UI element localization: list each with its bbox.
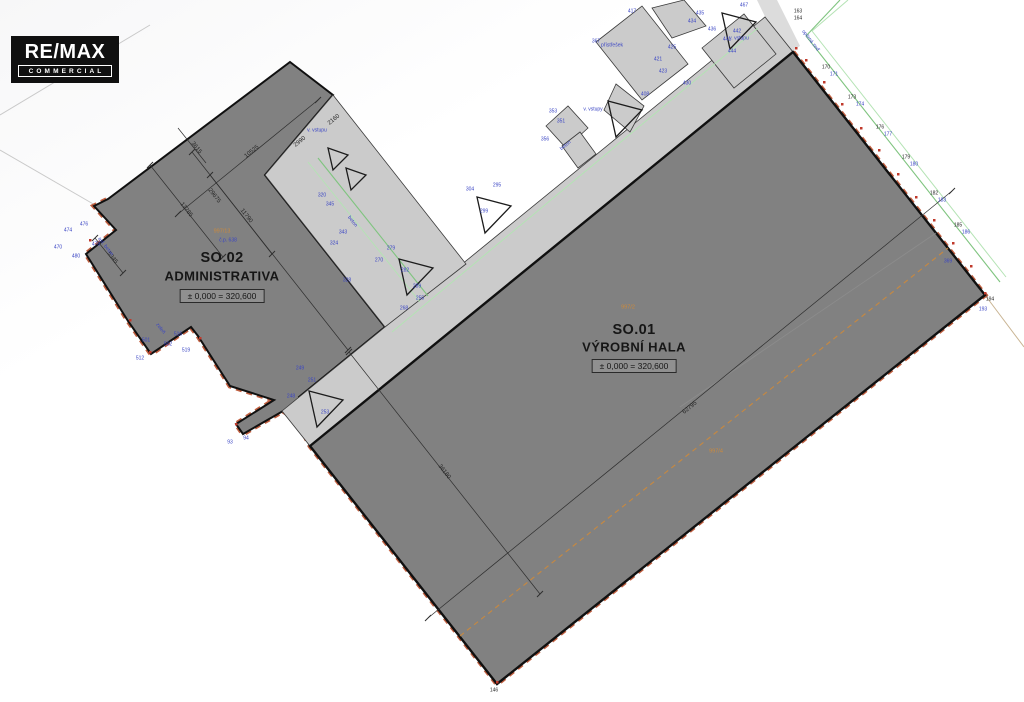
ann-label: 442 [733, 30, 741, 35]
ann-label: 268 [400, 307, 408, 312]
boundary-extension-line [0, 150, 95, 205]
ann-label: 353 [549, 110, 557, 115]
remax-commercial-logo: RE/MAX COMMERCIAL [12, 37, 118, 82]
ann-label: 324 [330, 242, 338, 247]
ann-label: v. vstupy [583, 108, 602, 113]
hall-name-label: VÝROBNÍ HALA [582, 340, 686, 355]
ann-label: 164 [794, 17, 802, 22]
ann-label: 435 [696, 12, 704, 17]
ann-label: 476 [80, 223, 88, 228]
ann-label: 180 [910, 163, 918, 168]
ann-label: 421 [654, 58, 662, 63]
ann-label: 997/13 [214, 229, 231, 235]
ann-label: 345 [326, 203, 334, 208]
ann-label: 253 [321, 411, 329, 416]
ann-label: 185 [954, 224, 962, 229]
ann-label: 249 [296, 367, 304, 372]
admin-elevation-box: ± 0,000 = 320,600 [180, 289, 265, 303]
ann-label: 444 [728, 50, 736, 55]
ann-label: 417 [628, 10, 636, 15]
logo-subtitle: COMMERCIAL [18, 65, 112, 77]
ann-label: 434 [688, 20, 696, 25]
ann-label: 367 [592, 40, 600, 45]
ann-label: 279 [387, 247, 395, 252]
ann-label: 425 [668, 46, 676, 51]
ann-label: 251 [308, 379, 316, 384]
ann-label: 282 [401, 269, 409, 274]
ann-label: 480 [72, 255, 80, 260]
ann-label: 320 [318, 194, 326, 199]
ann-label: 516 [174, 333, 182, 338]
ann-label: 299 [480, 210, 488, 215]
ann-label: 163 [794, 10, 802, 15]
ann-label: 93 [227, 441, 233, 446]
ann-label: 146 [490, 689, 498, 694]
ann-label: 512 [136, 357, 144, 362]
hall-id-label: SO.01 [612, 322, 655, 338]
admin-name-label: ADMINISTRATIVA [165, 269, 280, 284]
ann-label: 470 [54, 246, 62, 251]
ann-label: 423 [659, 70, 667, 75]
ann-label: 183 [938, 199, 946, 204]
site-plan: RE/MAX COMMERCIAL SO.01 VÝROBNÍ HALA ± 0… [0, 0, 1024, 702]
ann-label: 467 [740, 4, 748, 9]
ann-label: 94 [243, 437, 249, 442]
ann-label: 997/4 [709, 449, 723, 455]
ann-label: 430 [683, 82, 691, 87]
ann-label: 474 [64, 229, 72, 234]
ann-label: v. vstupu [307, 129, 327, 134]
admin-id-label: SO.02 [200, 250, 243, 266]
ann-label: 343 [339, 231, 347, 236]
ann-label: 304 [466, 188, 474, 193]
ann-label: 289 [413, 285, 421, 290]
ann-label: 502 [164, 343, 172, 348]
fence-line-4 [812, 0, 848, 31]
parcel-extension-line [985, 295, 1024, 347]
ann-label: 176 [876, 126, 884, 131]
ann-label: 193 [979, 308, 987, 313]
ann-label: 248 [287, 395, 295, 400]
ann-label: 351 [557, 120, 565, 125]
ann-label: 177 [884, 133, 892, 138]
ann-label: 173 [848, 96, 856, 101]
ann-label: v. vstupu [729, 37, 749, 42]
ann-label: 182 [930, 192, 938, 197]
ann-label: 436 [708, 28, 716, 33]
ann-label: 519 [182, 349, 190, 354]
ann-label: 501 [142, 339, 150, 344]
logo-wordmark: RE/MAX [12, 42, 118, 63]
site-plan-drawing [0, 0, 1024, 702]
ann-label: 255 [416, 297, 424, 302]
ann-label: 270 [375, 259, 383, 264]
ann-label: 179 [902, 156, 910, 161]
ann-label: 328 [343, 279, 351, 284]
fence-line-3 [806, 0, 840, 36]
ann-label: 174 [856, 103, 864, 108]
hall-elevation-box: ± 0,000 = 320,600 [592, 359, 677, 373]
ann-label: 295 [493, 184, 501, 189]
ann-label: 194 [986, 298, 994, 303]
ann-label: 186 [962, 231, 970, 236]
entrance-triangle-2 [477, 197, 511, 233]
ann-label: 171 [830, 73, 838, 78]
ann-label: 170 [822, 66, 830, 71]
ann-label: 356 [541, 138, 549, 143]
ann-label: 369 [944, 260, 952, 265]
ann-label: přístřešek [601, 44, 623, 49]
ann-label: 997/2 [621, 305, 635, 311]
ann-label: 408 [641, 93, 649, 98]
ann-label: č.p. 638 [219, 239, 237, 244]
